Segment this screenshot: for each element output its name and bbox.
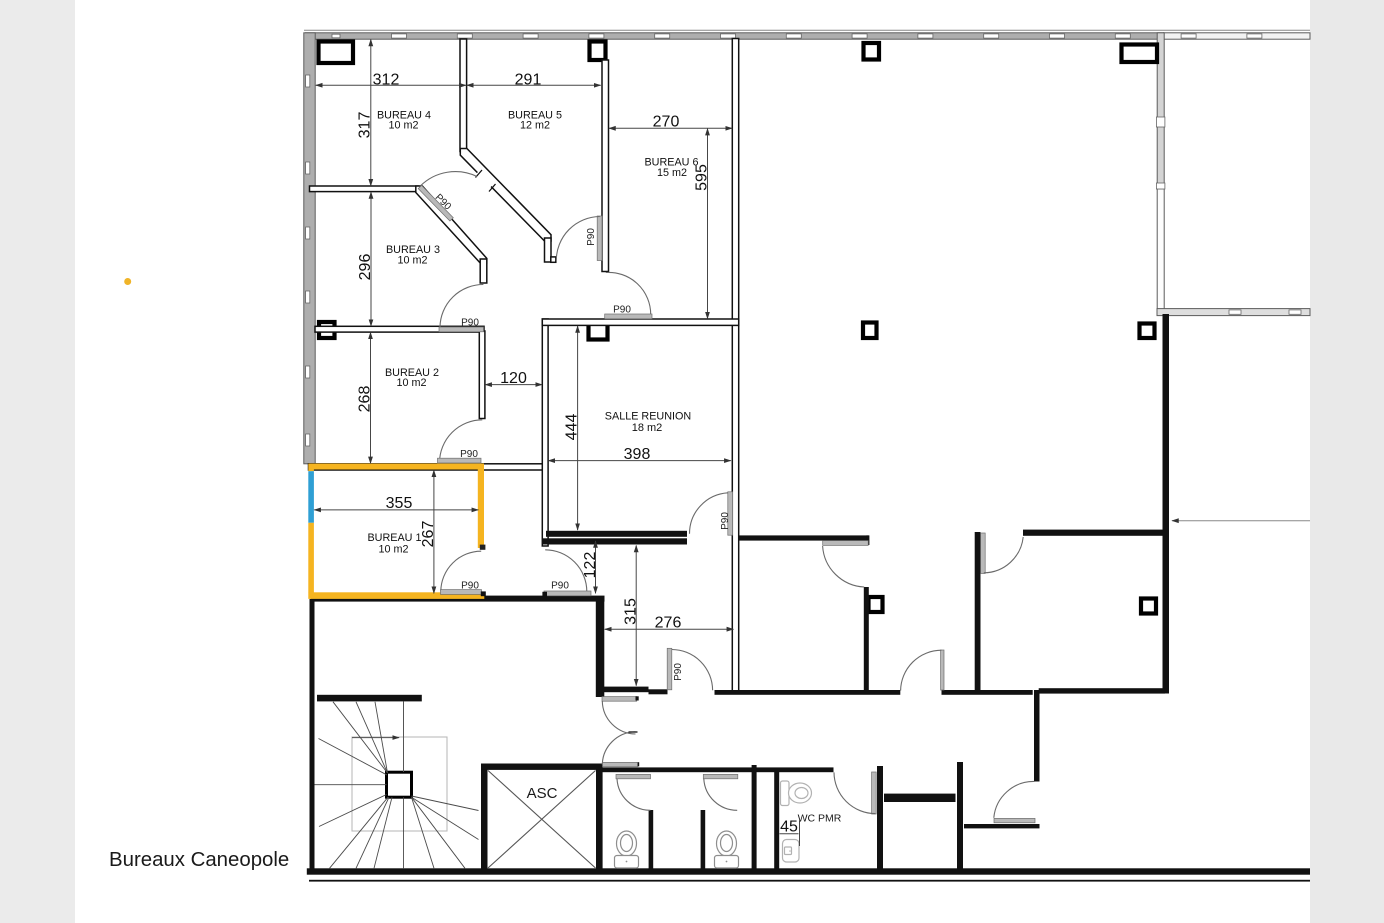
svg-text:276: 276 — [655, 615, 682, 632]
svg-text:P90: P90 — [461, 318, 479, 329]
svg-text:122: 122 — [582, 552, 599, 579]
svg-text:444: 444 — [564, 414, 581, 441]
svg-text:267: 267 — [420, 521, 437, 548]
svg-text:268: 268 — [357, 386, 374, 413]
svg-text:398: 398 — [624, 446, 651, 463]
svg-text:315: 315 — [623, 598, 640, 625]
svg-text:P90: P90 — [460, 449, 478, 460]
svg-text:Bureaux Caneopole: Bureaux Caneopole — [109, 849, 289, 871]
svg-text:355: 355 — [386, 495, 413, 512]
svg-text:WC PMR: WC PMR — [798, 813, 842, 825]
svg-text:45: 45 — [780, 819, 798, 836]
svg-text:270: 270 — [653, 114, 680, 131]
svg-text:P90: P90 — [551, 581, 569, 592]
svg-text:P90: P90 — [461, 581, 479, 592]
svg-text:312: 312 — [373, 72, 400, 89]
svg-text:291: 291 — [515, 72, 542, 89]
svg-text:120: 120 — [500, 370, 527, 387]
svg-text:P90: P90 — [720, 512, 731, 530]
svg-text:296: 296 — [357, 254, 374, 281]
svg-text:P90: P90 — [613, 305, 631, 316]
svg-text:P90: P90 — [673, 663, 684, 681]
svg-text:P90: P90 — [586, 228, 597, 246]
svg-text:ASC: ASC — [527, 785, 558, 802]
svg-text:317: 317 — [357, 112, 374, 139]
